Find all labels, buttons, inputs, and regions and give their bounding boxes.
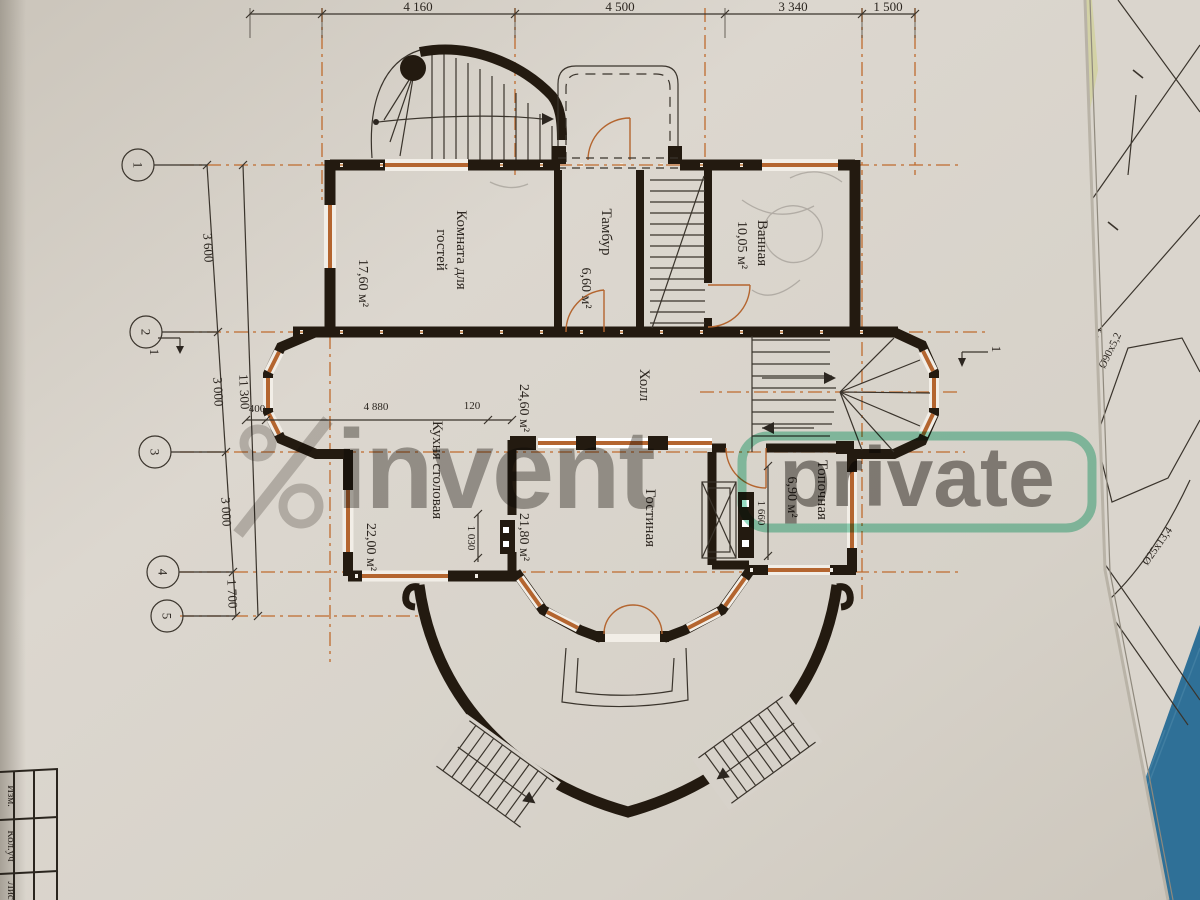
dim-top-3: 3 340 [778, 0, 807, 14]
dim-top-4: 1 500 [873, 0, 902, 14]
grid-axis-2: 2 [138, 329, 153, 336]
dim-left-2: 3 000 [210, 377, 227, 407]
watermark-brand: invent [336, 407, 655, 532]
room-tambour-name: Тамбур [598, 209, 614, 256]
title-block-row-izm: Изм. [5, 785, 17, 807]
grid-axis-1: 1 [130, 162, 145, 169]
svg-text:1: 1 [989, 346, 1004, 353]
watermark-badge-label: private [779, 430, 1054, 524]
dim-left-4: 1 700 [224, 579, 241, 609]
room-bath-name: Ванная [754, 220, 770, 266]
room-tambour-area: 6,60 м² [578, 267, 593, 308]
watermark-badge: private [742, 430, 1092, 528]
room-hall-name: Холл [636, 369, 652, 402]
dim-left-3: 3 000 [218, 497, 235, 527]
room-guest-name-1: Комната для [453, 210, 469, 290]
dim-top-1: 4 160 [403, 0, 432, 14]
dim-top-2: 4 500 [605, 0, 634, 14]
dim-left-1: 3 600 [200, 233, 217, 263]
grid-axis-4: 4 [155, 569, 170, 576]
title-block-row-koluch: Кол.уч [5, 830, 17, 862]
title-block-row-list: Лист [5, 881, 17, 900]
dim-400: 400 [249, 403, 266, 415]
section-mark-left: 1 [147, 349, 162, 356]
room-guest-area: 17,60 м² [355, 259, 370, 307]
grid-axis-3: 3 [147, 449, 162, 456]
grid-axis-5: 5 [159, 613, 174, 620]
photo-of-floor-plan: Г1 Ø90x5,2 Ø25x13,4 4 160 4 500 3 340 1 … [0, 0, 1200, 900]
room-bath-area: 10,05 м² [734, 221, 749, 269]
room-guest-name-2: гостей [433, 229, 449, 271]
